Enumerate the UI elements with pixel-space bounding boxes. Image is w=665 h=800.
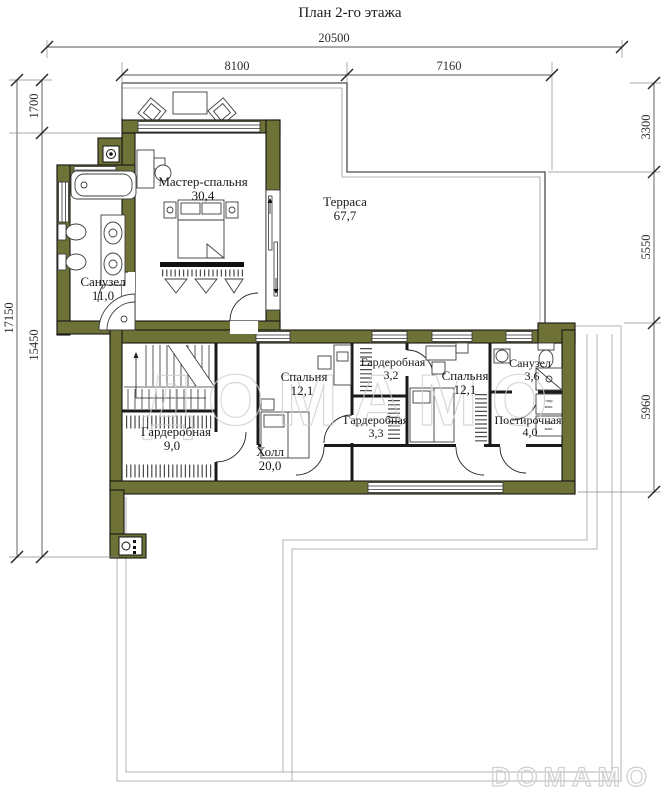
room-label-bath-main: Санузел [80, 274, 126, 289]
door-arc [500, 447, 526, 473]
window-bedroom-left-top [256, 332, 290, 342]
window-master-top [138, 122, 260, 133]
window-bedroom-right-top [432, 332, 472, 342]
brand-logo: DOMAMO [491, 762, 653, 792]
room-label-wardrobe-big: Гардеробная [141, 424, 211, 439]
dim-total-width: 20500 [318, 31, 349, 45]
dim-width-right: 7160 [437, 59, 462, 73]
dim-right-bottom: 5960 [639, 395, 653, 420]
vent-icon [103, 146, 119, 162]
room-area-wardrobe-32: 3,2 [384, 368, 399, 382]
room-area-laundry: 4,0 [523, 425, 538, 439]
room-area-bath-small: 3,6 [525, 369, 540, 383]
room-area-bedroom-left: 12,1 [291, 383, 314, 398]
sliding-door-icon [266, 190, 280, 310]
bathtub-icon [71, 171, 136, 199]
stove-chimney-icon [119, 537, 142, 555]
door-gap [230, 321, 258, 334]
room-label-terrace: Терраса [323, 194, 367, 209]
room-area-bedroom-right: 12,1 [454, 382, 477, 397]
room-area-bath-main: 11,0 [92, 288, 114, 303]
dim-left-total: 17150 [2, 302, 16, 333]
room-label-bedroom-right: Спальня [442, 368, 489, 383]
door-arc [456, 447, 484, 475]
dim-width-left: 8100 [225, 59, 250, 73]
room-label-bath-small: Санузел [509, 356, 551, 370]
door-arc [230, 293, 258, 321]
floor-plan-drawing: План 2-го этажа [0, 0, 665, 800]
room-label-wardrobe-32: Гардеробная [361, 355, 426, 369]
room-area-wardrobe-big: 9,0 [164, 438, 180, 453]
dim-left-top: 1700 [27, 94, 41, 119]
dim-right-top: 3300 [639, 115, 653, 140]
room-area-master: 30,4 [192, 188, 215, 203]
dim-left-main: 15450 [27, 329, 41, 360]
window-bath-small-top [506, 332, 532, 342]
dim-right-mid: 5550 [639, 235, 653, 260]
window-bath-left [59, 182, 69, 222]
room-label-wardrobe-33: Гардеробная [344, 413, 409, 427]
floor-plan: План 2-го этажа [0, 0, 665, 800]
room-label-hall: Холл [256, 444, 284, 459]
room-area-wardrobe-33: 3,3 [369, 426, 384, 440]
room-area-hall: 20,0 [259, 458, 282, 473]
page-title: План 2-го этажа [298, 5, 401, 21]
master-bed-icon [137, 150, 244, 293]
window-wardrobe-top [372, 332, 407, 342]
room-label-master: Мастер-спальня [158, 174, 247, 189]
window-hall-bottom [368, 483, 503, 493]
room-label-bedroom-left: Спальня [281, 369, 328, 384]
room-area-terrace: 67,7 [334, 208, 357, 223]
